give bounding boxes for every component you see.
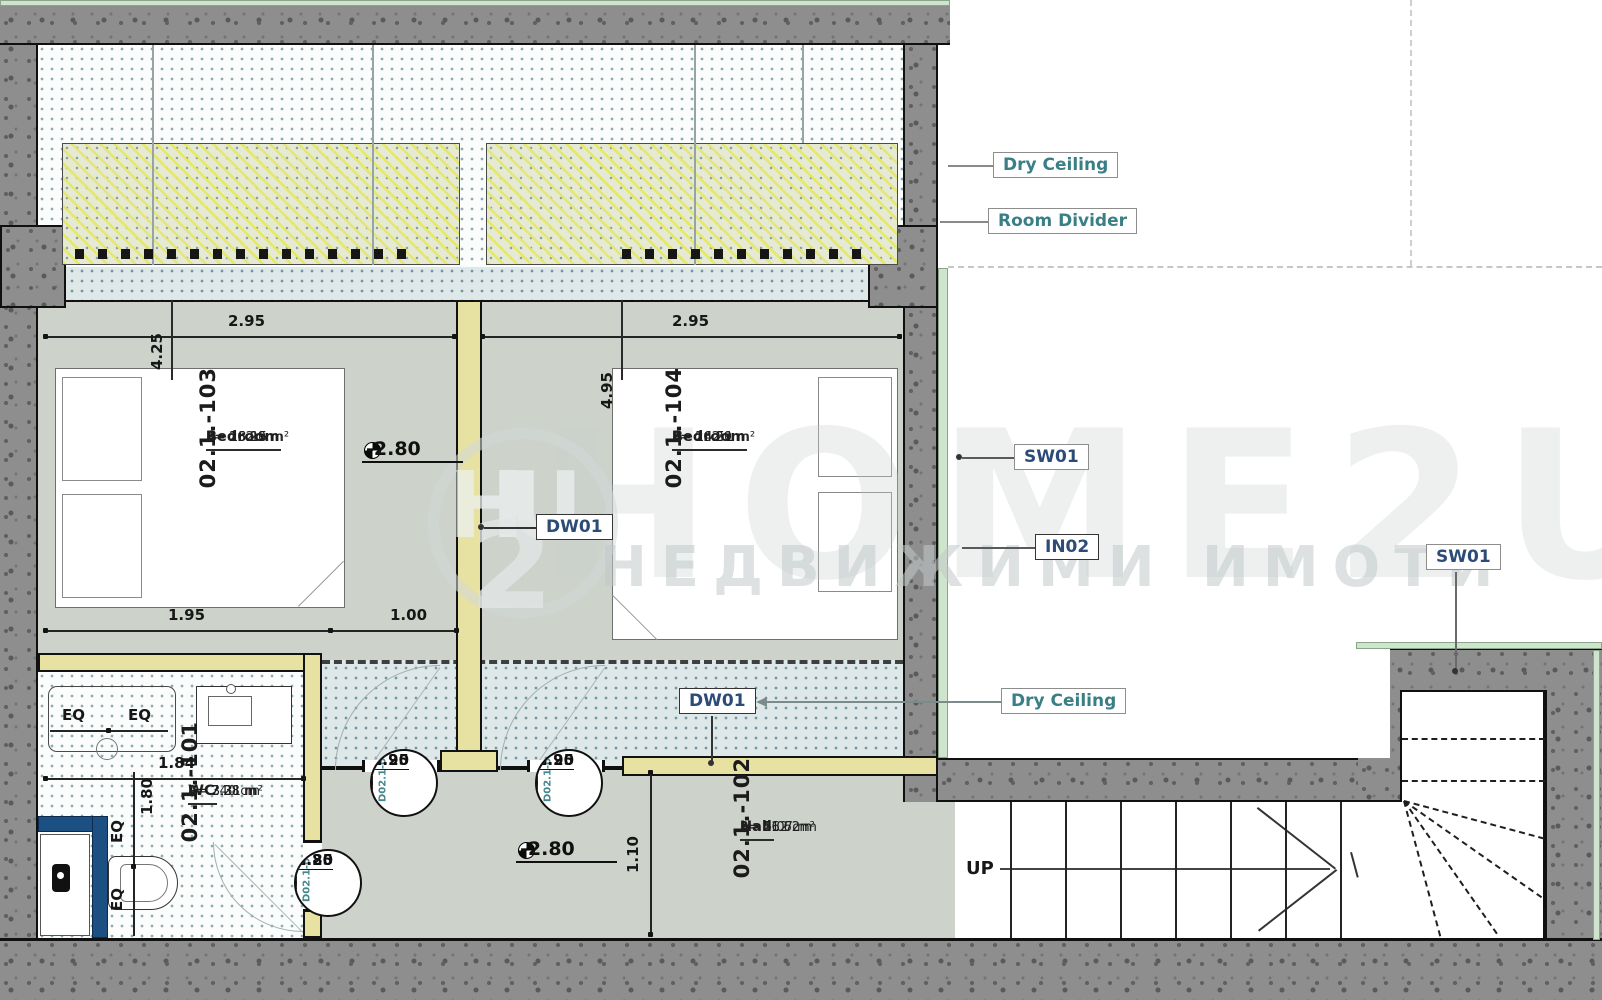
hall-floor-to-stairs: [903, 802, 955, 938]
dim-tick: [454, 628, 459, 633]
door-height: 2.25: [537, 751, 574, 769]
door-tag-d02-1-02: D02.1-02 0.90 2.25: [370, 749, 438, 817]
dim-line-hall-width: [650, 772, 652, 936]
dim-wc-width: 1.84: [158, 754, 195, 772]
dim-tick: [131, 864, 136, 869]
insulation-right-edge: [1593, 650, 1600, 940]
door-height: 2.25: [372, 751, 409, 769]
dim-wc-eq-left: EQ: [62, 706, 85, 724]
tag-dw01-upper: DW01: [536, 514, 613, 540]
dim-bed2-depth: 4.95: [598, 372, 616, 409]
insulation-winder-top: [1356, 642, 1602, 649]
dim-line-wc-depth: [133, 772, 135, 936]
right-room: [938, 268, 1390, 758]
rafter-line-4: [802, 45, 804, 143]
wall-between-bedrooms: [456, 300, 482, 770]
stairs-up-label: UP: [966, 858, 994, 879]
dim-wc-depth: 1.80: [138, 778, 156, 815]
dim-wc-eq-right: EQ: [128, 706, 151, 724]
elevation-value: -2.80: [362, 438, 463, 463]
bed1-pillow-bottom: [62, 494, 142, 598]
leader-dry-ceiling-top: [948, 165, 993, 167]
bed2-pillow-bottom: [818, 492, 892, 592]
dim-tick: [328, 628, 333, 633]
leader-room-divider: [940, 221, 988, 223]
tag-sw01-left: SW01: [1014, 444, 1089, 470]
winder-tread-dashed-2: [1402, 780, 1545, 782]
dim-tick: [43, 334, 48, 339]
dim-line-bed2-width: [482, 336, 901, 338]
tag-room-divider: Room Divider: [988, 208, 1137, 234]
dim-tick: [452, 334, 457, 339]
room-height: h= 262 cm: [206, 428, 278, 448]
room-divider-posts-left: [75, 249, 415, 259]
hall-wall-top: [622, 756, 938, 776]
dim-tick: [648, 770, 653, 775]
rafter-line-2: [372, 45, 374, 265]
tag-dry-ceiling-top: Dry Ceiling: [993, 152, 1118, 178]
dim-line-bed1-width: [45, 336, 456, 338]
attic-lower-strip: [38, 267, 903, 300]
dim-bed2-width: 2.95: [672, 312, 709, 330]
bed2-pillow-top: [818, 377, 892, 477]
dim-tick: [648, 932, 653, 937]
wc-sink-tap: [226, 684, 236, 694]
winder-tread-dashed-1: [1402, 738, 1545, 740]
dim-ext-bed1-depth: [171, 300, 173, 380]
dim-tick: [480, 334, 485, 339]
leader-arrow-dry-ceiling: [756, 697, 767, 707]
stair-tread-6: [1285, 802, 1287, 938]
stairs-up-arrow-line: [1000, 868, 1330, 870]
wall-top: [0, 0, 950, 45]
wall-winder-top: [1358, 648, 1602, 690]
leader-in02: [962, 547, 1035, 549]
wc-wall-top: [38, 653, 322, 672]
stair-tread-5: [1230, 802, 1232, 938]
shower-head-dot: [57, 872, 64, 879]
pilaster-left: [0, 225, 66, 308]
shower-wall-vertical: [92, 816, 108, 938]
rafter-line-1: [152, 45, 154, 265]
stair-tread-1: [1010, 802, 1012, 938]
dim-tick: [106, 728, 111, 733]
leader-dry-ceiling-bottom: [766, 701, 1001, 703]
dim-line-bed1-bottom: [45, 630, 458, 632]
tag-dw01-lower: DW01: [679, 688, 756, 714]
wall-left: [0, 0, 38, 1000]
dim-bed1-seg-right: 1.00: [390, 606, 427, 624]
dim-tick: [301, 776, 306, 781]
door-tag-d02-1-03: D02.1-03 0.90 2.25: [535, 749, 603, 817]
leader-dot: [478, 524, 484, 530]
dim-bed1-seg-left: 1.95: [168, 606, 205, 624]
wc-sink-basin: [208, 696, 252, 726]
leader-dot: [1452, 668, 1458, 674]
door-height: 2.25: [296, 851, 333, 869]
leader-dw01-lower: [711, 716, 713, 764]
room-height: h= 262 cm: [672, 428, 744, 448]
dim-tick: [897, 334, 902, 339]
wc-cabinet-drain: [96, 738, 118, 760]
leader-dw01-upper: [484, 527, 536, 529]
floor-plan-canvas: UP HOME2U H U 2 НЕДВИЖИМИ ИМОТИ 2.95 4.2…: [0, 0, 1602, 1000]
dim-wc-eq-v2: EQ: [108, 888, 126, 911]
tag-sw01-right: SW01: [1426, 544, 1501, 570]
bed1-pillow-top: [62, 377, 142, 481]
insulation-top: [0, 0, 950, 6]
room-divider-posts-right: [622, 249, 864, 259]
wall-between-bedrooms-foot: [440, 750, 498, 772]
dim-line-wc-width: [45, 778, 305, 780]
tag-dry-ceiling-bottom: Dry Ceiling: [1001, 688, 1126, 714]
stair-tread-4: [1175, 802, 1177, 938]
wc-toilet-seat: [120, 864, 168, 902]
dim-tick: [43, 776, 48, 781]
insulation-right-room-wall: [938, 268, 948, 758]
stair-tread-2: [1065, 802, 1067, 938]
room-divider-hatch-right: [486, 143, 898, 265]
leader-dot: [708, 760, 714, 766]
leader-sw01-right: [1455, 572, 1457, 672]
stair-tread-7: [1340, 802, 1342, 938]
roof-dashed-line-vertical: [1410, 0, 1412, 266]
stair-tread-3: [1120, 802, 1122, 938]
dim-ext-bed2-depth: [621, 300, 623, 380]
room-height: h= 240 cm: [188, 782, 260, 802]
rafter-line-3: [694, 45, 696, 265]
room-height: h= 262 cm: [740, 818, 812, 838]
leader-dot: [956, 454, 962, 460]
dim-wc-eq-v1: EQ: [108, 820, 126, 843]
door-tag-d02-1-01: D02.1-01 0.80 2.25: [294, 849, 362, 917]
leader-sw01-left: [962, 457, 1014, 459]
wall-bottom: [0, 938, 1602, 1000]
dim-hall-width: 1.10: [624, 836, 642, 873]
elevation-value: -2.80: [516, 838, 617, 863]
dim-bed1-depth: 4.25: [148, 333, 166, 370]
dim-tick: [43, 628, 48, 633]
tag-in02: IN02: [1035, 534, 1099, 560]
wall-stair-top-run: [938, 758, 1390, 802]
dim-bed1-width: 2.95: [228, 312, 265, 330]
room-divider-hatch-left: [62, 143, 460, 265]
wall-bedrooms-right: [903, 45, 938, 802]
